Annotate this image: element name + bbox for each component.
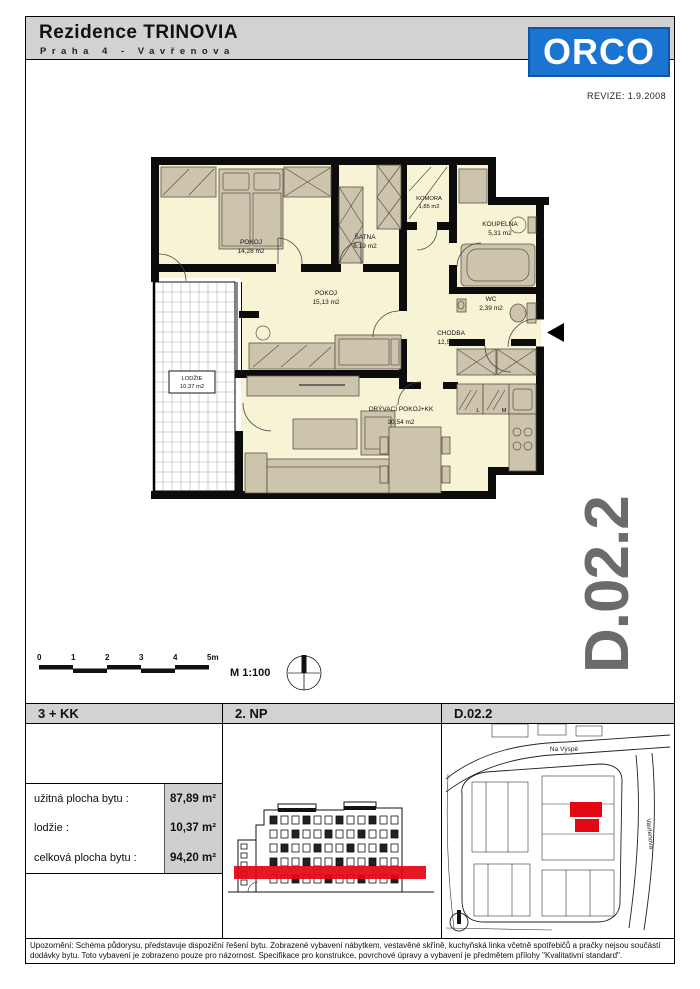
column-floor-level: 2. NP bbox=[223, 704, 442, 938]
coffee-table bbox=[293, 419, 357, 449]
table-row: užitná plocha bytu : 87,89 m² bbox=[26, 784, 222, 814]
room-label-bedroom1: POKOJ bbox=[240, 239, 262, 246]
svg-text:1: 1 bbox=[71, 653, 76, 662]
site-map-drawing: Na Výspě Vavřenova bbox=[442, 724, 673, 935]
svg-text:4: 4 bbox=[173, 653, 178, 662]
area-table: užitná plocha bytu : 87,89 m² lodžie : 1… bbox=[26, 783, 222, 874]
street-label-top: Na Výspě bbox=[550, 746, 579, 753]
orco-logo: ORCO bbox=[528, 27, 670, 77]
sofa bbox=[267, 459, 393, 493]
svg-text:30,54 m2: 30,54 m2 bbox=[387, 419, 414, 426]
room-label-closet: ŠATNA bbox=[354, 232, 376, 241]
scale-bar: 0 1 2 3 4 5m M 1:100 bbox=[34, 649, 354, 707]
room-label-bathroom: KOUPELNA bbox=[482, 221, 518, 228]
room-label-living: OBÝVACÍ POKOJ+KK bbox=[369, 404, 434, 413]
layout-type-header: 3 + KK bbox=[26, 704, 222, 724]
column-layout-type: 3 + KK užitná plocha bytu : 87,89 m² lod… bbox=[26, 704, 223, 938]
floor-level-header: 2. NP bbox=[223, 704, 441, 724]
summary-section: 3 + KK užitná plocha bytu : 87,89 m² lod… bbox=[26, 703, 674, 938]
room-label-storage: KOMORA bbox=[416, 196, 442, 202]
room-label-loggia: LODŽIE bbox=[182, 374, 203, 382]
svg-text:2,39 m2: 2,39 m2 bbox=[479, 305, 503, 312]
street-label-right: Vavřenova bbox=[644, 818, 654, 850]
disclaimer-text: Upozornění: Schéma půdorysu, představuje… bbox=[26, 938, 674, 963]
room-label-wc: WC bbox=[486, 296, 497, 303]
building-elevation-drawing bbox=[226, 780, 438, 906]
svg-text:5m: 5m bbox=[207, 653, 219, 662]
scale-ratio: M 1:100 bbox=[230, 667, 270, 679]
north-compass-icon bbox=[287, 655, 321, 690]
table-row: celková plocha bytu : 94,20 m² bbox=[26, 843, 222, 873]
highlighted-floor-band bbox=[234, 866, 426, 879]
table-row: lodžie : 10,37 m² bbox=[26, 814, 222, 844]
revision-label: REVIZE: 1.9.2008 bbox=[587, 91, 666, 101]
floor-plan-drawing: POKOJ 14,28 m2 ŠATNA 6,19 m2 KOMORA 1,85… bbox=[144, 153, 576, 509]
svg-text:10,37 m2: 10,37 m2 bbox=[180, 384, 204, 390]
svg-text:0: 0 bbox=[37, 653, 42, 662]
room-label-bedroom2: POKOJ bbox=[315, 290, 337, 297]
room-label-hall: CHODBA bbox=[437, 330, 465, 337]
svg-text:2: 2 bbox=[105, 653, 110, 662]
kitchen-letter-m: M bbox=[502, 408, 507, 414]
entrance-arrow-icon bbox=[547, 323, 564, 342]
document-frame: Rezidence TRINOVIA Praha 4 - Vavřenova O… bbox=[25, 16, 675, 964]
scale-ticks: 0 1 2 3 4 5m bbox=[37, 653, 219, 662]
svg-text:14,28 m2: 14,28 m2 bbox=[237, 248, 264, 255]
svg-text:15,13 m2: 15,13 m2 bbox=[312, 299, 339, 306]
floor-plan-sheet: { "header": { "title": "Rezidence TRINOV… bbox=[0, 0, 700, 989]
svg-text:12,50 m2: 12,50 m2 bbox=[437, 339, 464, 346]
unit-code-header: D.02.2 bbox=[442, 704, 674, 724]
toilet bbox=[510, 304, 526, 322]
svg-text:6,19 m2: 6,19 m2 bbox=[353, 243, 377, 250]
svg-text:5,31 m2: 5,31 m2 bbox=[488, 230, 512, 237]
column-unit-code: D.02.2 bbox=[442, 704, 674, 938]
highlighted-unit bbox=[570, 802, 602, 817]
unit-code-vertical: D.02.2 bbox=[576, 448, 646, 673]
svg-text:3: 3 bbox=[139, 653, 144, 662]
svg-text:1,85 m2: 1,85 m2 bbox=[419, 204, 440, 210]
double-bed bbox=[219, 169, 283, 249]
dining-table bbox=[389, 427, 441, 493]
